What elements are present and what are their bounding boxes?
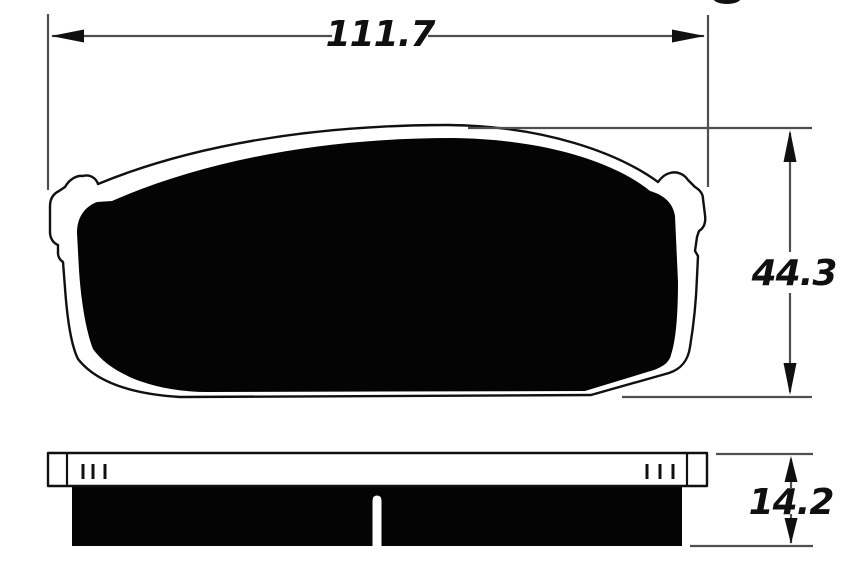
backing-plate-side — [48, 453, 707, 486]
thickness-dimension-label: 14.2 — [749, 482, 834, 523]
arrowhead-up-icon — [784, 130, 797, 162]
brake-pad-drawing: 111.7 44.3 — [0, 0, 852, 564]
technical-drawing-canvas: 111.7 44.3 — [0, 0, 852, 564]
friction-material-side — [72, 486, 682, 546]
side-profile-view — [48, 453, 707, 546]
thickness-dimension: 14.2 — [690, 454, 833, 546]
artifact-mark — [713, 0, 741, 4]
height-dimension-label: 44.3 — [751, 253, 837, 294]
arrowhead-down-icon — [784, 363, 797, 395]
arrowhead-right-icon — [672, 30, 705, 43]
width-dimension-label: 111.7 — [326, 14, 436, 55]
arrowhead-left-icon — [51, 30, 84, 43]
front-view — [50, 125, 705, 397]
arrowhead-up-icon — [785, 456, 798, 482]
